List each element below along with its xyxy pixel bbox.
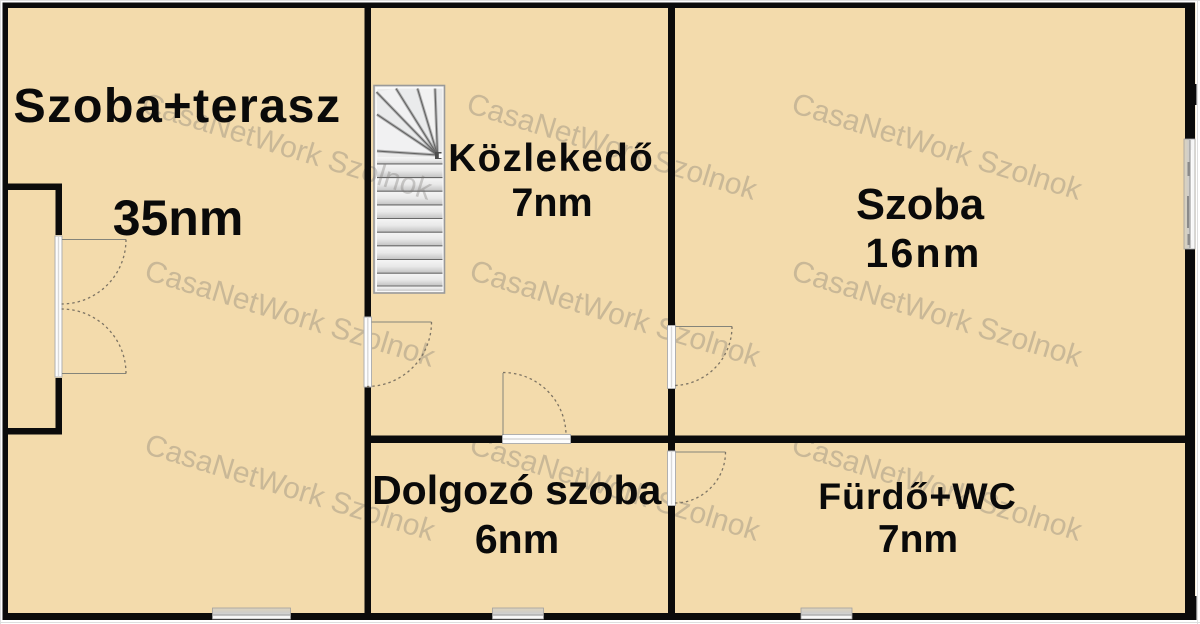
svg-text:Szoba: Szoba — [856, 181, 985, 229]
svg-text:16nm: 16nm — [865, 230, 981, 276]
svg-text:Dolgozó szoba: Dolgozó szoba — [372, 467, 662, 513]
svg-text:35nm: 35nm — [113, 190, 244, 246]
svg-text:7nm: 7nm — [878, 518, 958, 561]
svg-text:7nm: 7nm — [511, 181, 592, 225]
svg-text:Fürdő+WC: Fürdő+WC — [818, 475, 1017, 517]
svg-text:Közlekedő: Közlekedő — [448, 137, 654, 180]
svg-text:6nm: 6nm — [475, 516, 559, 562]
svg-text:Szoba+terasz: Szoba+terasz — [13, 79, 341, 133]
